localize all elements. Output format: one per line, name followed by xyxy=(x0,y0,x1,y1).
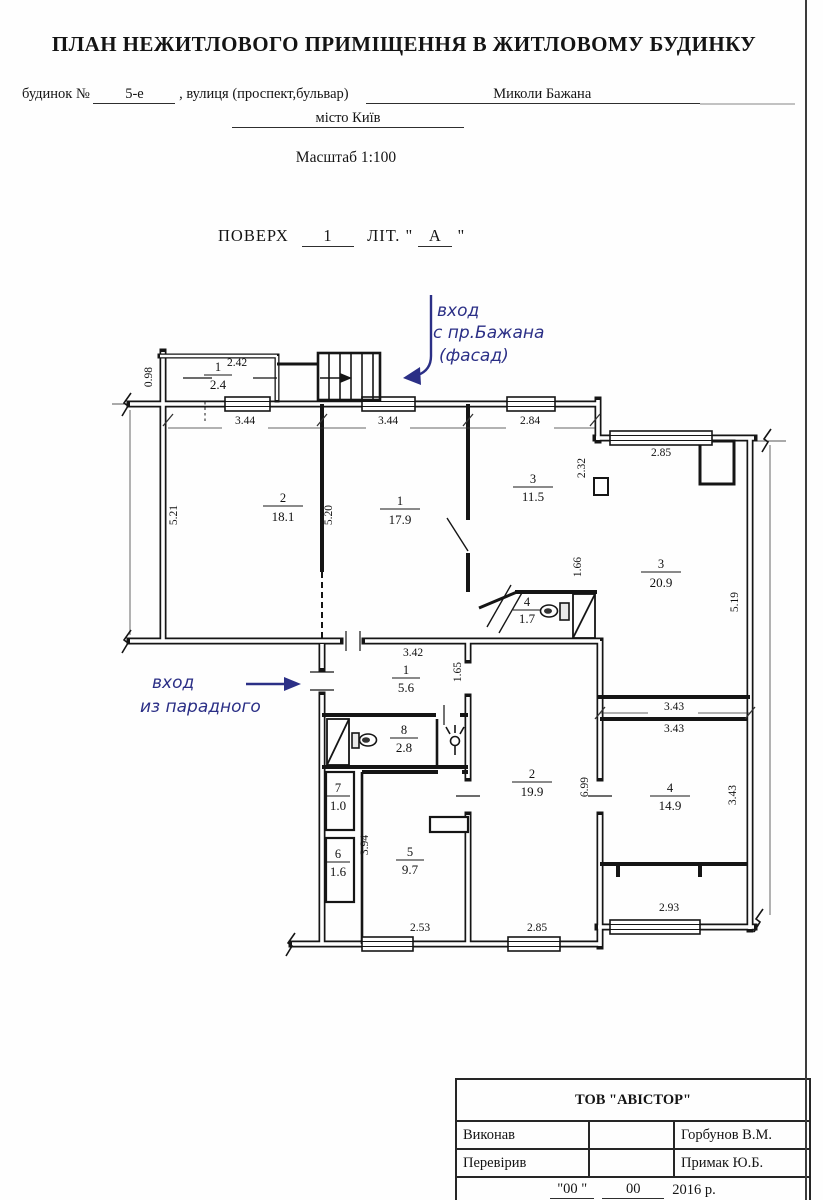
dim-label: 2.53 xyxy=(410,922,430,934)
dim-label: 5.21 xyxy=(168,505,180,525)
dim-label: 2.32 xyxy=(576,458,588,478)
toilet-icon xyxy=(352,733,377,748)
room-area-label: 2.8 xyxy=(396,740,412,755)
break-mark xyxy=(122,393,771,956)
dim-label: 2.85 xyxy=(651,447,671,459)
document-title: ПЛАН НЕЖИТЛОВОГО ПРИМІЩЕННЯ В ЖИТЛОВОМУ … xyxy=(18,32,790,57)
room-area-label: 20.9 xyxy=(650,575,673,590)
handwritten-annotations: вход с пр.Бажана (фасад) вход из парадно… xyxy=(140,295,544,717)
dim-label: 6.99 xyxy=(579,777,591,797)
room-number-label: 6 xyxy=(335,847,341,861)
wardrobe-icon xyxy=(327,719,349,765)
dim-label: 3.43 xyxy=(727,785,739,805)
room-number-label: 4 xyxy=(524,595,531,609)
window-symbols xyxy=(225,397,712,951)
scan-artifact xyxy=(700,103,795,105)
building-address-row: будинок № 5-е , вулиця (проспект,бульвар… xyxy=(22,86,792,104)
street-label: , вулиця (проспект,бульвар) xyxy=(179,86,349,102)
city-row: місто Київ xyxy=(232,110,464,128)
floor-label: ПОВЕРХ xyxy=(218,226,289,245)
floor-plan: 2.42 0.98 3.44 3.44 2.84 2.85 2.32 5.21 … xyxy=(0,0,823,1200)
table-row: Виконав Горбунов В.М. xyxy=(457,1122,809,1150)
signature-cell xyxy=(590,1122,675,1148)
dim-label: 5.20 xyxy=(323,505,335,525)
executed-label-cell: Виконав xyxy=(457,1122,590,1148)
top-right-shaft xyxy=(700,441,734,484)
signature-cell xyxy=(590,1150,675,1176)
dim-label: 5.19 xyxy=(729,592,741,612)
scanned-floor-plan-document: ПЛАН НЕЖИТЛОВОГО ПРИМІЩЕННЯ В ЖИТЛОВОМУ … xyxy=(0,0,823,1200)
room-number-label: 8 xyxy=(401,723,407,737)
toilet-icon xyxy=(541,603,570,620)
dim-label: 1.66 xyxy=(572,557,584,577)
letter-suffix: " xyxy=(457,226,465,245)
dim-label: 3.42 xyxy=(403,647,423,659)
dim-label: 1.65 xyxy=(452,662,464,682)
wc-angled-wall xyxy=(479,592,517,608)
entry-arrow-top xyxy=(418,295,431,375)
street-value: Миколи Бажана xyxy=(366,86,718,104)
room-number-label: 1 xyxy=(215,360,221,374)
date-row: "00 " 00 2016 р. xyxy=(457,1178,809,1200)
floor-row: ПОВЕРХ 1 ЛІТ. " А " xyxy=(218,226,465,247)
handwritten-note: вход xyxy=(152,673,194,693)
checked-label-cell: Перевірив xyxy=(457,1150,590,1176)
handwritten-note: вход xyxy=(437,301,479,321)
room-area-label: 18.1 xyxy=(272,509,295,524)
room-number-label: 3 xyxy=(530,472,536,486)
dim-label: 0.98 xyxy=(143,367,155,387)
partition-walls xyxy=(322,404,750,877)
scale-note: Масштаб 1:100 xyxy=(200,149,492,167)
page-border xyxy=(805,0,807,1200)
room-area-label: 1.6 xyxy=(330,864,347,879)
walls xyxy=(130,352,754,946)
room-number-label: 1 xyxy=(397,494,403,508)
closet-room7 xyxy=(326,772,354,830)
room-number-label: 7 xyxy=(335,781,341,795)
dim-label: 2.93 xyxy=(659,902,679,914)
closet-room6 xyxy=(326,838,354,902)
stairs-icon xyxy=(318,353,380,400)
building-number-value: 5-е xyxy=(93,86,175,104)
dim-label: 3.44 xyxy=(235,415,255,427)
room-area-label: 2.4 xyxy=(210,377,227,392)
extension-lines xyxy=(112,404,786,915)
dim-label: 3.94 xyxy=(359,835,371,855)
pilaster xyxy=(594,478,608,495)
room-number-label: 5 xyxy=(407,845,413,859)
title-block-table: ТОВ "АВІСТОР" Виконав Горбунов В.М. Пере… xyxy=(455,1078,811,1200)
room-area-label: 11.5 xyxy=(522,489,544,504)
date-month: 00 xyxy=(602,1181,664,1199)
checked-value-cell: Примак Ю.Б. xyxy=(675,1150,809,1176)
dim-label: 3.43 xyxy=(664,701,684,713)
room-number-label: 2 xyxy=(280,491,286,505)
dimension-ticks xyxy=(163,414,755,719)
room-number-label: 4 xyxy=(667,781,674,795)
building-number-label: будинок № xyxy=(22,86,90,102)
room-labels: 1 2.4 2 18.1 1 17.9 3 11.5 4 1.7 3 20.9 … xyxy=(204,360,690,879)
lamp-icon xyxy=(446,725,464,755)
entry-arrow-left-head xyxy=(284,677,301,691)
handwritten-note: (фасад) xyxy=(439,346,509,366)
room-number-label: 1 xyxy=(403,663,409,677)
handwritten-note: из парадного xyxy=(140,697,261,717)
date-year: 2016 р. xyxy=(672,1182,716,1199)
room-area-label: 19.9 xyxy=(521,784,544,799)
dim-label: 2.85 xyxy=(527,922,547,934)
letter-prefix: ЛІТ. " xyxy=(367,226,413,245)
wall-alcove xyxy=(430,817,468,832)
date-day: "00 " xyxy=(550,1181,594,1199)
room-area-label: 1.7 xyxy=(519,611,536,626)
dim-label: 2.84 xyxy=(520,415,540,427)
dim-label: 3.43 xyxy=(664,723,684,735)
company-cell: ТОВ "АВІСТОР" xyxy=(457,1080,809,1122)
entry-arrow-top-head xyxy=(403,367,421,385)
handwritten-note: с пр.Бажана xyxy=(433,323,544,343)
room-number-label: 2 xyxy=(529,767,535,781)
opening-ticks xyxy=(183,378,612,796)
table-row: Перевірив Примак Ю.Б. xyxy=(457,1150,809,1178)
city-value: місто Київ xyxy=(232,110,464,128)
door-swing xyxy=(447,518,523,633)
room-area-label: 14.9 xyxy=(659,798,682,813)
floor-value: 1 xyxy=(302,226,354,247)
room-area-label: 9.7 xyxy=(402,862,419,877)
dim-label: 3.44 xyxy=(378,415,398,427)
vestibule-walls xyxy=(160,356,318,400)
room-number-label: 3 xyxy=(658,557,664,571)
dashed-walls xyxy=(205,402,322,641)
room-area-label: 17.9 xyxy=(389,512,412,527)
letter-value: А xyxy=(418,226,452,247)
executed-value-cell: Горбунов В.М. xyxy=(675,1122,809,1148)
walls-core xyxy=(130,352,754,946)
room-area-label: 5.6 xyxy=(398,680,415,695)
room-area-label: 1.0 xyxy=(330,798,346,813)
dim-label: 2.42 xyxy=(227,357,247,369)
vent-shaft xyxy=(573,594,595,638)
dimension-labels: 2.42 0.98 3.44 3.44 2.84 2.85 2.32 5.21 … xyxy=(143,357,741,934)
